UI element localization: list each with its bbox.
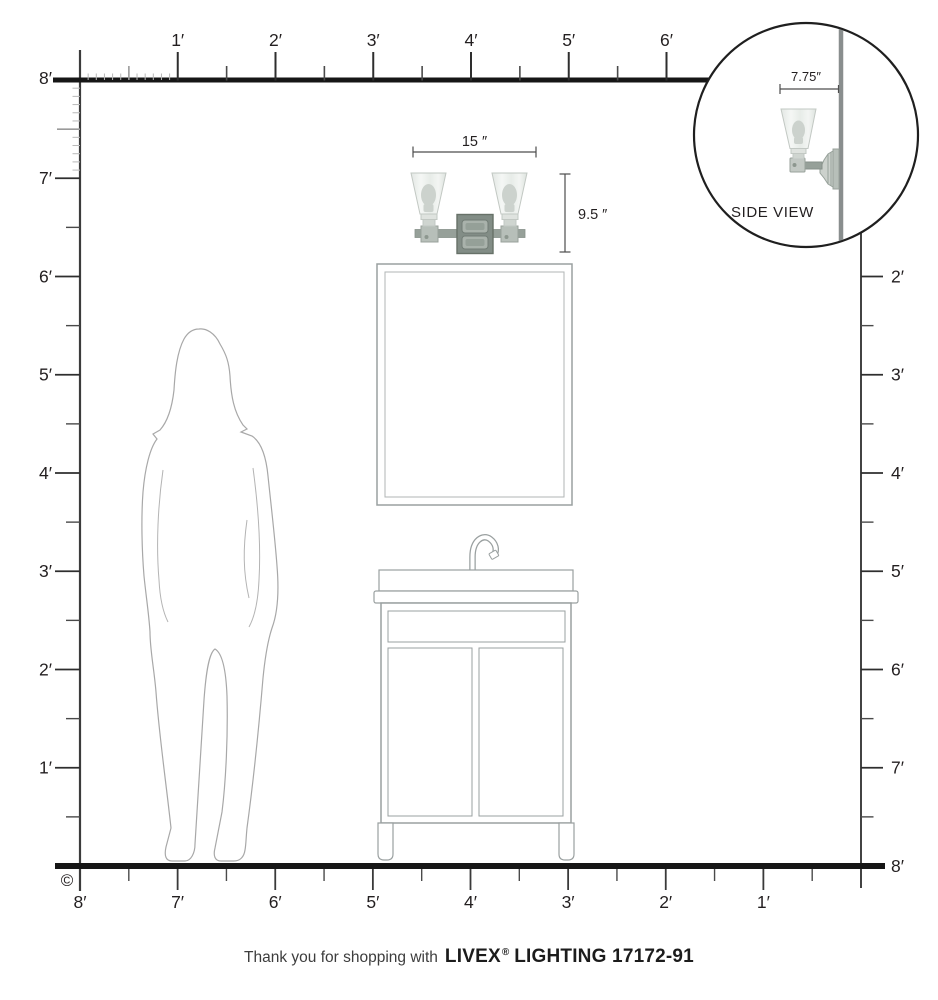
ruler-label: 3′ (39, 561, 52, 581)
sconce-arm (804, 162, 822, 169)
bulb-base (505, 204, 515, 212)
socket-screw (505, 235, 509, 239)
bulb-base (794, 137, 803, 144)
ruler-label: 3′ (562, 892, 575, 912)
ruler-label: 1′ (39, 758, 52, 778)
backplate-slot-inner (466, 239, 485, 246)
backplate-slot-inner (466, 223, 485, 230)
ruler-label: 2′ (659, 892, 672, 912)
cabinet-door-right (479, 648, 563, 816)
ruler-label: 5′ (39, 365, 52, 385)
bulb-base (424, 204, 434, 212)
wall-mount-plate (833, 149, 839, 189)
footer-model: LIGHTING 17172-91 (514, 946, 694, 967)
countertop (374, 591, 578, 603)
height-dimension (560, 174, 571, 252)
bottom-ruler-labels: 8′ 7′ 6′ 5′ 4′ 3′ 2′ 1′ (73, 892, 769, 912)
ruler-label: 3′ (367, 30, 380, 50)
dimension-sheet: 1′ 2′ 3′ 4′ 5′ 6′ 8′ 7′ 6′ 5′ 4′ 3′ 2′ 1… (0, 0, 938, 1000)
ruler-label: 4′ (464, 30, 477, 50)
shade-collar (502, 214, 518, 220)
footer-brand: LIVEX (445, 946, 501, 967)
top-ruler-ticks (88, 52, 666, 81)
drawer-panel (388, 611, 565, 642)
right-ruler-labels: 2′ 3′ 4′ 5′ 6′ 7′ 8′ (891, 267, 904, 877)
footer-message: Thank you for shopping with (244, 949, 438, 966)
sconce-socket (790, 158, 805, 172)
mirror (377, 264, 572, 505)
shade-neck (793, 154, 804, 160)
socket-screw (793, 163, 797, 167)
footer: Thank you for shopping withLIVEX®LIGHTIN… (0, 946, 938, 968)
ruler-label: 6′ (891, 660, 904, 680)
ruler-label: 5′ (366, 892, 379, 912)
shade-neck (504, 220, 516, 227)
socket-screw (425, 235, 429, 239)
side-view-inset: 7.75″ SIDE VIEW (694, 22, 918, 248)
scene-drawing: 1′ 2′ 3′ 4′ 5′ 6′ 8′ 7′ 6′ 5′ 4′ 3′ 2′ 1… (0, 0, 938, 1000)
ruler-label: 8′ (73, 892, 86, 912)
bulb-silhouette (421, 184, 436, 206)
fixture-height-label: 9.5 ″ (578, 207, 607, 223)
vanity-light-fixture: 15 ″ 9.5 ″ (411, 134, 607, 254)
left-ruler-ticks (55, 88, 80, 817)
ruler-label: 4′ (464, 892, 477, 912)
ruler-label: 7′ (171, 892, 184, 912)
bulb-silhouette (792, 121, 805, 140)
shade-collar (421, 214, 437, 220)
ruler-label: 1′ (757, 892, 770, 912)
top-ruler-labels: 1′ 2′ 3′ 4′ 5′ 6′ (171, 30, 673, 50)
left-ruler-labels: 8′ 7′ 6′ 5′ 4′ 3′ 2′ 1′ (39, 68, 52, 778)
ruler-label: 8′ (39, 68, 52, 88)
registered-trademark: ® (502, 947, 509, 958)
cabinet-leg-right (559, 823, 574, 860)
ruler-label: 4′ (39, 463, 52, 483)
ruler-label: 8′ (891, 856, 904, 876)
ruler-label: 5′ (891, 561, 904, 581)
cabinet-door-left (388, 648, 472, 816)
ruler-label: 1′ (171, 30, 184, 50)
cabinet-leg-left (378, 823, 393, 860)
vanity-cabinet (374, 537, 578, 860)
ruler-label: 6′ (39, 267, 52, 287)
lamp-socket (501, 226, 518, 242)
fixture-backplate (457, 215, 493, 254)
bulb-silhouette (502, 184, 517, 206)
ruler-label: 3′ (891, 365, 904, 385)
copyright-symbol: © (61, 871, 74, 890)
ruler-label: 2′ (891, 267, 904, 287)
ruler-label: 2′ (39, 660, 52, 680)
ruler-label: 6′ (660, 30, 673, 50)
ruler-label: 6′ (269, 892, 282, 912)
shade-neck (423, 220, 435, 227)
fixture-width-label: 15 ″ (462, 134, 487, 150)
mirror-frame (377, 264, 572, 505)
side-depth-label: 7.75″ (791, 69, 821, 84)
ruler-label: 7′ (39, 168, 52, 188)
bottom-ruler-ticks (129, 869, 812, 890)
scale-figure-woman (142, 329, 278, 861)
ruler-label: 5′ (562, 30, 575, 50)
right-ruler-ticks (861, 277, 883, 817)
ruler-label: 7′ (891, 758, 904, 778)
shade-collar (791, 149, 806, 154)
side-view-label: SIDE VIEW (731, 204, 814, 221)
backsplash (379, 570, 573, 591)
ruler-label: 2′ (269, 30, 282, 50)
lamp-socket (421, 226, 438, 242)
ruler-label: 4′ (891, 463, 904, 483)
